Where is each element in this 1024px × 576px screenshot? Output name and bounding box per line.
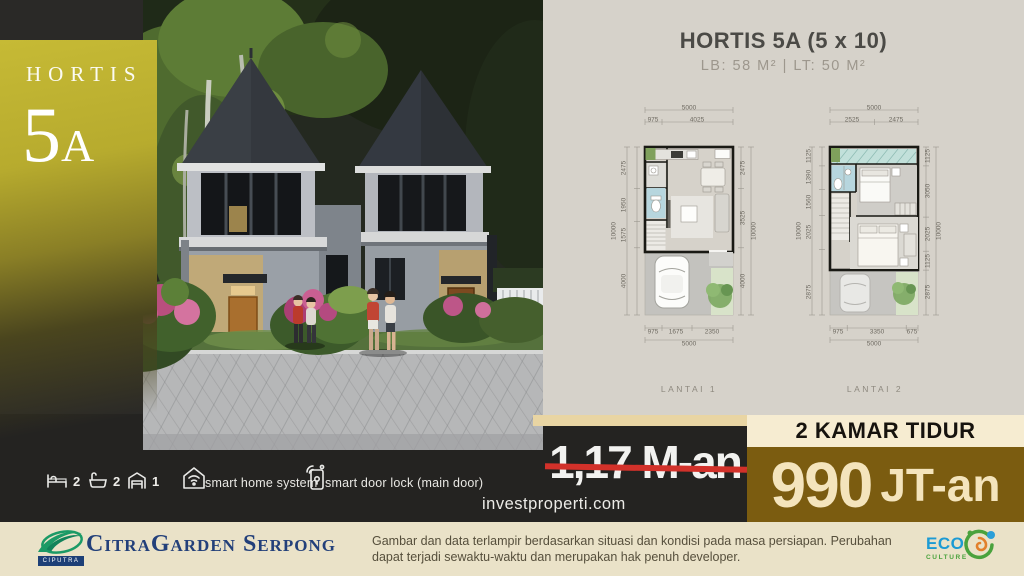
dim-label: 2025 xyxy=(806,225,813,239)
ciputra-logo-icon xyxy=(34,526,86,558)
dim-label: 10000 xyxy=(936,222,943,240)
dim-label: 1575 xyxy=(621,228,628,242)
plan-caption-lantai-1: LANTAI 1 xyxy=(661,384,717,394)
house-scene-illustration xyxy=(143,0,543,450)
dim-label: 5000 xyxy=(867,341,881,348)
dim-label: 1390 xyxy=(806,170,813,184)
dim-label: 2475 xyxy=(889,117,903,124)
dim-label: 1125 xyxy=(925,149,932,163)
plan-caption-lantai-2: LANTAI 2 xyxy=(847,384,903,394)
bedroom-banner-text: 2 KAMAR TIDUR xyxy=(795,418,975,444)
house-photo xyxy=(143,0,543,450)
dim-label: 2475 xyxy=(621,161,628,175)
dim-label: 2025 xyxy=(925,227,932,241)
product-badge: HORTIS 5 A xyxy=(0,40,157,512)
dim-label: 2525 xyxy=(845,117,859,124)
bed-icon xyxy=(46,474,68,489)
dim-label: 975 xyxy=(833,329,844,336)
flyer-canvas: HORTIS 5 A HORTIS 5A (5 x 10) LB: 58 M² … xyxy=(0,0,1024,576)
floorplan-1-drawing xyxy=(615,100,765,355)
dim-label: 975 xyxy=(648,117,659,124)
garage-icon xyxy=(127,472,147,489)
dim-label: 2350 xyxy=(705,329,719,336)
badge-letter: A xyxy=(61,123,94,169)
dim-label: 10000 xyxy=(796,222,803,240)
eco-culture-logo-icon xyxy=(962,528,996,562)
smart-home-label: smart home system xyxy=(205,476,317,490)
floorplan-lantai-1: 5000 975 4025 975 1675 2350 5000 2475 19… xyxy=(615,100,765,400)
dim-label: 5000 xyxy=(682,341,696,348)
badge-number: 5 xyxy=(22,92,61,178)
disclaimer-text: Gambar dan data terlampir berdasarkan si… xyxy=(372,534,917,565)
website-url: investproperti.com xyxy=(482,495,626,514)
dim-label: 3350 xyxy=(870,329,884,336)
bath-icon xyxy=(88,472,108,489)
floorplan-subtitle: LB: 58 M² | LT: 50 M² xyxy=(543,58,1024,74)
dim-label: 1675 xyxy=(669,329,683,336)
footer-bar: CIPUTRA CitraGarden Serpong Gambar dan d… xyxy=(0,522,1024,576)
badge-unit-number: 5 A xyxy=(22,92,94,178)
bedroom-count: 2 xyxy=(73,474,80,489)
floorplan-panel: HORTIS 5A (5 x 10) LB: 58 M² | LT: 50 M² xyxy=(543,0,1024,415)
developer-name: CitraGarden Serpong xyxy=(86,531,336,558)
ciputra-wordmark: CIPUTRA xyxy=(38,556,84,566)
new-price-value: 990 xyxy=(771,453,872,517)
dim-label: 2875 xyxy=(925,285,932,299)
dim-label: 4000 xyxy=(740,274,747,288)
carport-count: 1 xyxy=(152,474,159,489)
price-accent-strip xyxy=(533,415,747,426)
dim-label: 10000 xyxy=(751,222,758,240)
floorplan-lantai-2: 5000 2525 2475 975 3350 675 5000 1125 13… xyxy=(800,100,950,400)
dim-label: 4025 xyxy=(690,117,704,124)
dim-label: 1950 xyxy=(621,198,628,212)
old-price: 1,17 M-an xyxy=(543,437,747,488)
smart-home-icon xyxy=(181,466,207,490)
badge-series-name: HORTIS xyxy=(26,62,143,87)
dim-label: 3050 xyxy=(925,184,932,198)
dim-label: 1560 xyxy=(806,195,813,209)
bedroom-banner: 2 KAMAR TIDUR xyxy=(747,415,1024,447)
dim-label: 5000 xyxy=(867,105,881,112)
smart-lock-label: smart door lock (main door) xyxy=(325,476,483,490)
dim-label: 2475 xyxy=(740,161,747,175)
new-price-unit: JT-an xyxy=(880,462,1000,508)
bathroom-count: 2 xyxy=(113,474,120,489)
dim-label: 3525 xyxy=(740,211,747,225)
dim-label: 10000 xyxy=(611,222,618,240)
dim-label: 5000 xyxy=(682,105,696,112)
dim-label: 1125 xyxy=(806,149,813,163)
dim-label: 1125 xyxy=(925,254,932,268)
dim-label: 975 xyxy=(648,329,659,336)
floorplan-title: HORTIS 5A (5 x 10) xyxy=(543,28,1024,54)
dim-label: 4000 xyxy=(621,274,628,288)
dim-label: 2875 xyxy=(806,285,813,299)
new-price-box: 990 JT-an xyxy=(747,447,1024,522)
dim-label: 675 xyxy=(907,329,918,336)
